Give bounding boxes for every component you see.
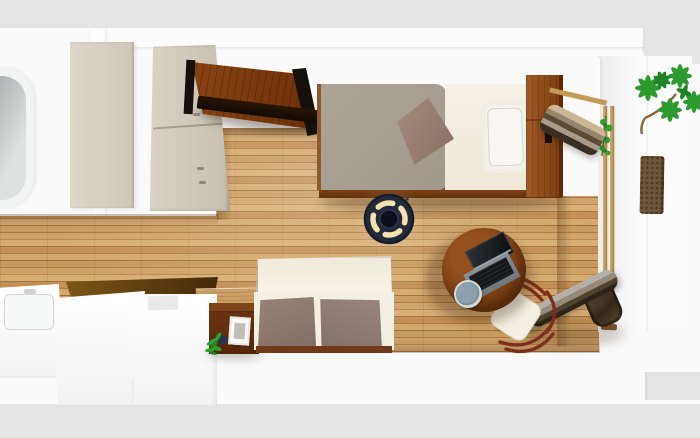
bathroom-door[interactable] <box>70 42 134 208</box>
counter-gray-patch <box>148 295 178 310</box>
bed-pillow[interactable] <box>481 100 530 174</box>
pillow-stitch-line <box>487 107 524 166</box>
side-table-plant[interactable] <box>204 328 238 358</box>
floorplan-canvas[interactable] <box>0 0 700 438</box>
exterior-bottom <box>0 404 700 438</box>
sink-basin-outline <box>4 294 54 330</box>
wardrobe-handle-lower <box>199 181 206 184</box>
exterior-bottom-right <box>645 372 700 438</box>
wicker-pouf[interactable] <box>639 156 664 214</box>
ceiling-light[interactable] <box>361 191 417 247</box>
sofa-cushion-left <box>258 296 316 348</box>
wardrobe-handle-bottom <box>197 167 204 170</box>
bathtub[interactable] <box>0 68 34 208</box>
sofa-cushion-right <box>319 297 382 349</box>
large-plant[interactable] <box>618 50 700 150</box>
wardrobe-handle-top <box>193 113 200 116</box>
wardrobe-door-seam <box>153 122 225 129</box>
mug[interactable] <box>454 280 482 308</box>
kitchen-sink[interactable] <box>0 284 64 378</box>
sofa-backrest <box>256 256 392 294</box>
top-wall <box>90 28 643 47</box>
bathtub-basin <box>0 76 26 200</box>
